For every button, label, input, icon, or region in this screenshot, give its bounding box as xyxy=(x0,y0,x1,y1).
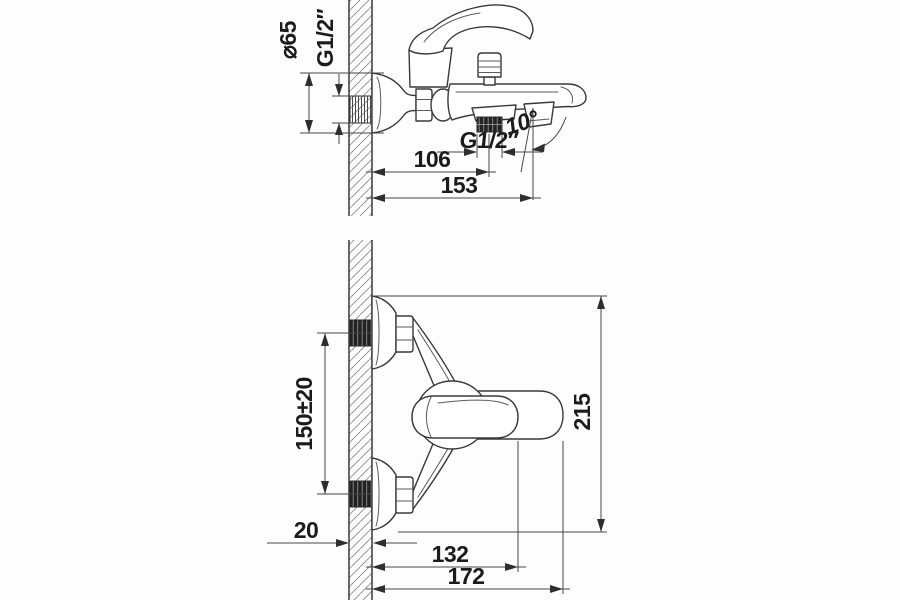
plan-view: 150±20 215 20 132 172 xyxy=(267,240,607,600)
wall-section-plan xyxy=(349,240,372,600)
handle-side xyxy=(409,5,533,87)
handle-plan xyxy=(412,396,518,438)
inlet-thread-side xyxy=(350,96,373,123)
side-view: ⌀65 G1/2″ G1/2″ 10° xyxy=(275,0,586,216)
wall-thickness-label: 20 xyxy=(294,517,319,543)
outlet-projection-label: 106 xyxy=(414,146,451,172)
escutcheon-upper xyxy=(372,296,413,369)
flange-diameter-label: ⌀65 xyxy=(275,20,301,59)
overall-projection-label: 172 xyxy=(448,563,485,589)
faucet-technical-drawing: ⌀65 G1/2″ G1/2″ 10° xyxy=(0,0,900,600)
diverter-knob xyxy=(478,53,501,85)
escutcheon-lower xyxy=(372,458,413,530)
overall-span-label: 215 xyxy=(569,393,595,431)
inlet-thread-label: G1/2″ xyxy=(312,8,338,67)
drawing-canvas: ⌀65 G1/2″ G1/2″ 10° xyxy=(0,0,900,600)
inlet-spacing-label: 150±20 xyxy=(291,377,317,451)
hex-nut-side xyxy=(416,89,432,121)
spout-projection-label: 153 xyxy=(441,172,478,198)
